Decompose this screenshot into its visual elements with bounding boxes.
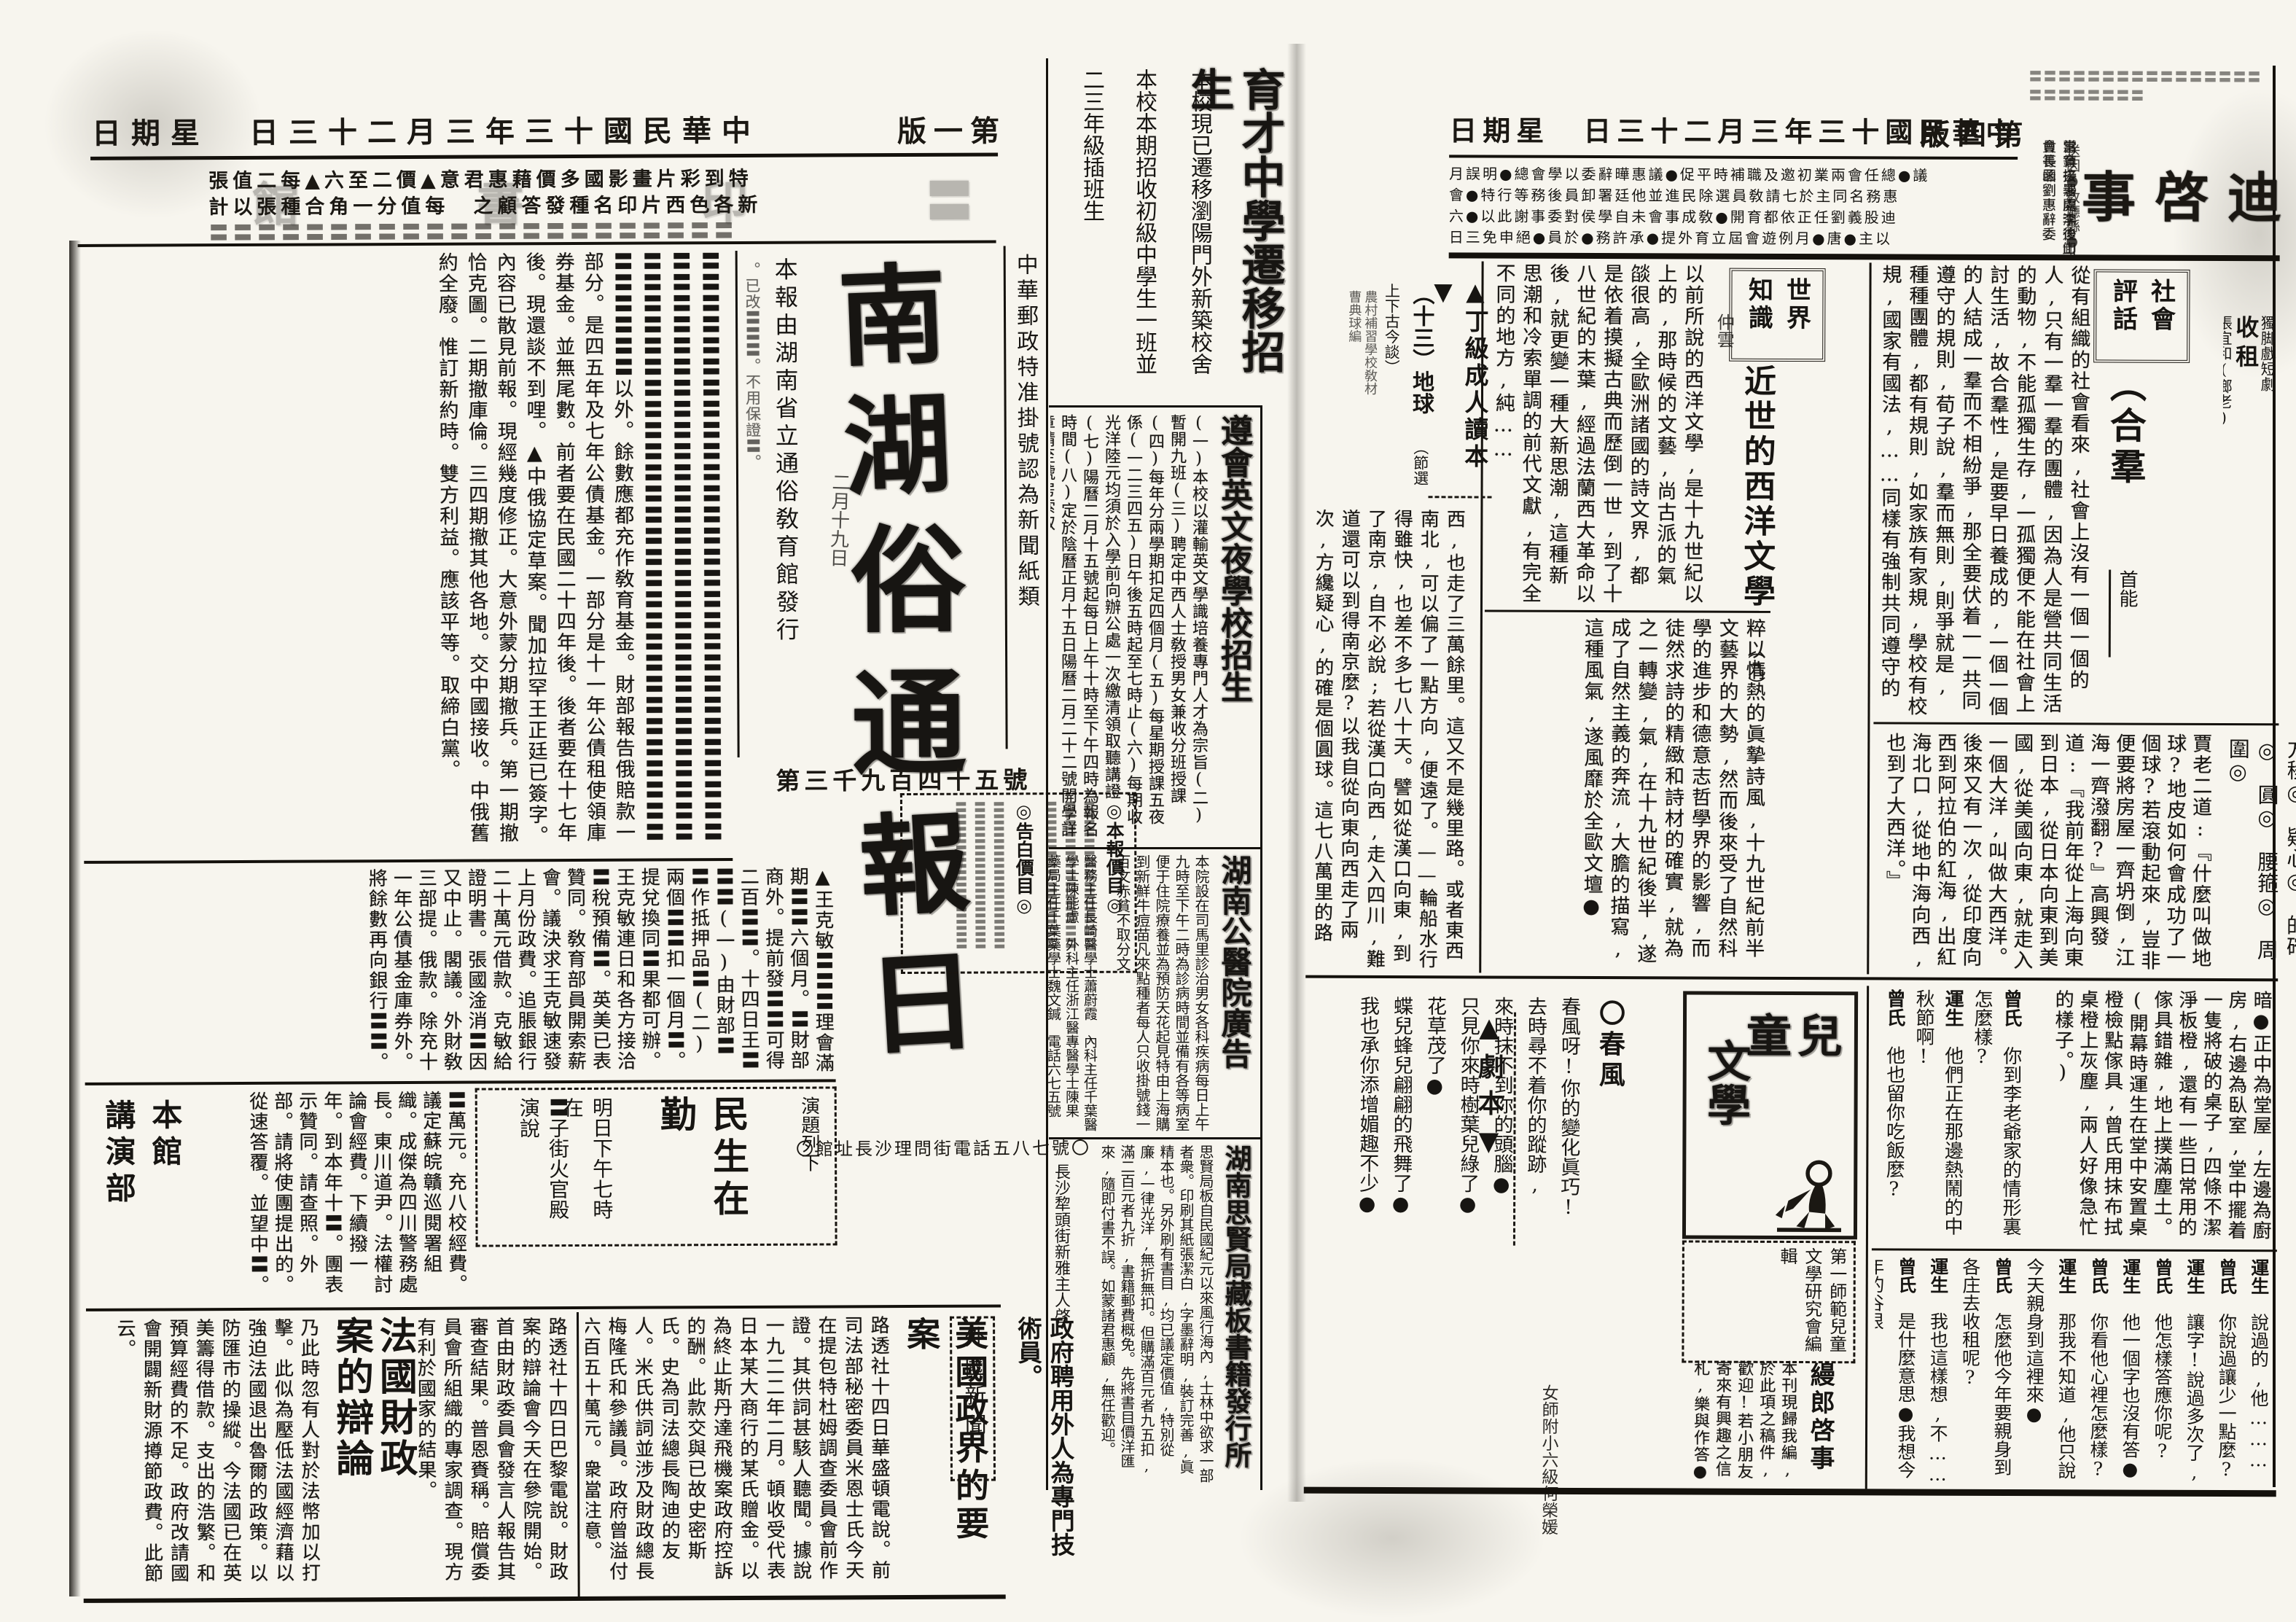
right-header-rule bbox=[1449, 155, 2018, 160]
yucai-sub-text: 本校現已遷移瀏陽門外新築校舍 bbox=[1187, 69, 1212, 375]
dingji-tiny1-text: 農村補習學校敎材 bbox=[1362, 290, 1378, 395]
right-page-bottom-rule bbox=[1304, 1487, 2276, 1497]
poem-line: 去時尋不着你的蹤跡, bbox=[1517, 997, 1552, 1405]
liheidi-grid-row4: 日三免申絕●員於●務許承●提外育立屆會遊例月●唐●主以 bbox=[1449, 227, 2018, 250]
band2-text: ▲王克敏〓〓〓理會滿期〓〓六個月。〓財部商外。提前發〓〓可得二百〓〓。十四日王〓… bbox=[365, 866, 834, 1073]
hospital-body: 本院設在司馬里診治男女各科疾病每日上午九時至下午二時為診病時間並備有各等病室便于… bbox=[1101, 854, 1211, 1131]
gutter-rule-2 bbox=[1049, 847, 1260, 849]
banner-ad: 館 書 印 〓 〓 張值二每▲六至二價▲意君惠藉價多國影畫片彩到特 計以張種合角… bbox=[165, 160, 992, 242]
speaker: 運生 bbox=[2120, 1258, 2141, 1295]
right-page-date-header: 日期星 日三十二月三年三十國民華中 bbox=[1449, 108, 1916, 149]
band1-text: 〓〓〓〓〓〓〓〓〓〓〓〓〓〓〓〓〓〓〓〓〓〓〓〓〓〓〓〓〓〓〓〓〓〓〓〓〓〓〓〓… bbox=[435, 251, 723, 846]
masthead-calligraphy: 南湖 俗通 報日 二月十九日 bbox=[808, 247, 1010, 742]
dingji-tiny2-text: 曹典球編 bbox=[1346, 290, 1362, 343]
speaker: 曾氏 bbox=[2000, 989, 2022, 1027]
play-left-rule bbox=[1865, 986, 1869, 1489]
rates-title-b: ◎告白價目◎ bbox=[1010, 800, 1037, 965]
right-page-label: 版四第 bbox=[1921, 118, 2030, 153]
lecture-topic: 民生在勤 bbox=[649, 1095, 755, 1239]
grid-row-text: 日三免申絕●員於●務許承●提外育立屆會遊例月●唐●主以 bbox=[1449, 228, 1892, 247]
banner-ad-row3: 〓〓〓〓〓〓〓〓〓〓〓〓〓〓〓〓〓〓〓〓〓〓 bbox=[208, 215, 738, 242]
ad-hunan-public-hospital: 湖南公醫院廣告 本院設在司馬里診治男女各科疾病每日上午九時至下午二時為診病時間並… bbox=[1046, 851, 1257, 1134]
sixianju-body: 思賢局板自民國紀元以來風行海內,士林中欲求一部者衆。印刷其紙張潔白,字墨辭明,裝… bbox=[1077, 1145, 1215, 1487]
hospital-staff-text: 醫務主任長崎醫學士蕭蔚霞 內科主任千葉醫學士陳能慮 外科主任浙江醫專醫學士陳果 … bbox=[1047, 854, 1098, 1131]
right-mid-rule bbox=[1305, 975, 2278, 982]
dingji-lesson-text: 西,也走了三萬餘里。這又不是幾里路。或者東西南北,可以偏了一點方向,便遠了。——… bbox=[1308, 509, 1467, 970]
banner-row3-text: 〓〓〓〓〓〓〓〓〓〓〓〓〓〓〓〓〓〓〓〓〓〓 bbox=[208, 220, 738, 242]
stage-directions-text: 暗●正中為堂屋,左邊為廚房,右邊為臥室,堂中擺着一隻將破的桌子,四條不潔淨板橙,… bbox=[2052, 989, 2272, 1241]
date-script-text: 二月十九日 bbox=[827, 472, 851, 567]
poem-line: 我也承你添增媚趣不少● bbox=[1349, 996, 1384, 1404]
poem-line: 只見你來時樹葉兒綠了● bbox=[1450, 996, 1485, 1404]
french-article-tail: 乃此時忽有人對於法幣加以打擊。此似為壓低法國經濟藉以強迫法國退出魯爾的政策。以防… bbox=[88, 1318, 323, 1596]
liheidi-announcement: 當育接署處李後山會長函劉惠辭委 惠鎮去沙開鴻迪卸員等罪 事啓迪惠李 送因●敎廳縣… bbox=[2018, 110, 2281, 257]
foreign-news-label-box: 外國新聞 bbox=[950, 1316, 996, 1481]
left-page-date-header: 日期星 日三十二月三年三十國民華中 bbox=[92, 106, 864, 152]
poem-line-text: 去時尋不着你的蹤跡, bbox=[1523, 997, 1547, 1196]
shijie-zhishi-box: 世界知識 bbox=[1729, 268, 1825, 362]
dialogue-line: 運生 讓字!說過多次了, bbox=[2178, 1258, 2211, 1489]
xiyang-author-text: 仲雲 bbox=[1714, 313, 1734, 348]
poem-line-text: 春風呀!你的變化眞巧! bbox=[1557, 997, 1580, 1219]
dialogue-line: 曾氏 是什麼意思●我想今年的谷很 bbox=[1875, 1257, 1922, 1487]
masthead-tongsu: 俗通 bbox=[851, 513, 980, 792]
hequn-title: （合羣 bbox=[2098, 365, 2152, 555]
poem-line-text: 只見你來時樹葉兒綠了● bbox=[1456, 996, 1480, 1215]
speaker: 運生 bbox=[2184, 1258, 2206, 1295]
xiyang-wenxue-title: 近世的西洋文學 bbox=[1733, 364, 1780, 627]
speech: 他怎樣答應你呢? bbox=[2152, 1313, 2174, 1462]
sixianju-headline: 湖南思賢局藏板書籍發行所 bbox=[1219, 1145, 1253, 1487]
poem-line: 春風呀!你的變化眞巧! bbox=[1550, 997, 1585, 1405]
band3-text: 〓萬元。充八校經費。議定蘇皖贛巡閱署組織。成傑為四川警務處長。東川道尹。法權討論… bbox=[246, 1091, 467, 1295]
ymca-headline: 遵會英文夜學校招生 bbox=[1214, 414, 1253, 837]
sixianju-sig-text: 長沙犂頭街新雅主人啓 bbox=[1052, 1163, 1070, 1324]
manlang-note-text: 本刊現歸我編,於此項之稿件,歡迎!若小朋友寄來有興趣之信札,樂與作答● bbox=[1691, 1360, 1797, 1481]
top-margin-text: 〓〓〓〓〓〓〓〓〓〓〓〓〓〓〓〓〓〓〓〓〓〓〓〓 bbox=[2028, 69, 2262, 104]
poem-line-text: 蝶兒蜂兒翩翩的飛舞了● bbox=[1389, 996, 1413, 1215]
poem-line-text: 我也承你添增媚趣不少● bbox=[1356, 996, 1379, 1215]
lecture-topic-text: 民生在勤 bbox=[655, 1095, 751, 1222]
sig-benguan: 本館 bbox=[141, 1099, 189, 1295]
dialogue-line: 曾氏 你到李老爺家的情形裏怎麼樣? bbox=[1967, 989, 2026, 1241]
poem-line: 花草茂了● bbox=[1416, 996, 1451, 1404]
rates-title-b-text: ◎告白價目◎ bbox=[1013, 800, 1035, 916]
masthead-side-note: 。已改〓〓〓。不用保證〓。 bbox=[741, 262, 765, 728]
sig-jiangyanbu: 講演部 bbox=[95, 1099, 142, 1296]
shehui-pinghua-box: 社會評話 bbox=[2093, 269, 2190, 362]
masthead-hunan: 南湖 bbox=[836, 250, 973, 512]
poem-body: 春風呀!你的變化眞巧! 去時尋不着你的蹤跡, 來時抹不到你的頭腦● 只見你來時樹… bbox=[1307, 996, 1585, 1405]
xiyang-part2: 粹以情熱的眞摯詩風,十九世紀前半文藝界的大勢,然而後來受了自然科學的進步和德意志… bbox=[1488, 617, 1768, 971]
ymca-headline-text: 遵會英文夜學校招生 bbox=[1215, 414, 1252, 703]
sixianju-headline-text: 湖南思賢局藏板書籍發行所 bbox=[1220, 1145, 1252, 1468]
band3-rule bbox=[86, 1304, 1001, 1311]
masthead-publisher: 本報由湖南省立通俗敎育館發行 bbox=[768, 257, 805, 738]
dialogue-line: 曾氏 他也留你吃飯麼? bbox=[1879, 989, 1909, 1241]
cast-text: 張宜和(鄉老) bbox=[2221, 315, 2233, 426]
lecture-notice-box: 演題列下 民生在勤 明日下午七時在 〓子街火官殿演說 bbox=[475, 1086, 837, 1247]
dialogue-line: 運生 那我不知道,他只說今天親身到這裡來● bbox=[2018, 1258, 2082, 1488]
office-address-line: 〇館址長沙理問街電話五八七號〇 bbox=[796, 1134, 1066, 1161]
sixianju-body-text: 思賢局板自民國紀元以來風行海內,士林中欲求一部者衆。印刷其紙張潔白,字墨辭明,裝… bbox=[1098, 1145, 1214, 1483]
ymca-body: (一)本校以灌輸英文學識培養專門人才為宗旨(二)暫開九班(三)聘定中西人士敎授男… bbox=[1050, 414, 1209, 840]
ad-sixianju-books: 湖南思賢局藏板書籍發行所 思賢局板自民國紀元以來風行海內,士林中欲求一部者衆。印… bbox=[1046, 1142, 1257, 1490]
liheidi-side-col-3: 送因●敎廳縣●詠先學● bbox=[2061, 144, 2082, 253]
speaker: 運生 bbox=[1942, 989, 1964, 1027]
gutter-ads: 育才中學遷移招生 本校現已遷移瀏陽門外新築校舍 本校本期招收初級中學生一班並 二… bbox=[1046, 0, 1301, 1622]
shijie-box-label: 世界知識 bbox=[1744, 277, 1811, 332]
rates-col-text: 〓〓〓〓〓〓〓〓〓〓〓〓 bbox=[990, 800, 1005, 949]
ertong-logo-word1: 童兒 bbox=[1746, 999, 1848, 1065]
left-page-number: 版一第 bbox=[897, 107, 1007, 150]
poem-line-text: 花草茂了● bbox=[1424, 996, 1446, 1097]
publisher-text: 本報由湖南省立通俗敎育館發行 bbox=[771, 257, 800, 645]
yucai-body1: 本校本期招收初級中學生一班並 bbox=[1129, 69, 1158, 397]
hospital-staff: 醫務主任長崎醫學士蕭蔚霞 內科主任千葉醫學士陳能慮 外科主任浙江醫專醫學士陳果 … bbox=[1047, 854, 1098, 1131]
rates-col-text: 〓〓〓〓〓〓〓〓〓〓〓〓 bbox=[971, 801, 986, 950]
yucai-body1-text: 本校本期招收初級中學生一班並 bbox=[1131, 69, 1157, 375]
dingji-marker-text: ▲丁級成人讀本▼ bbox=[1429, 277, 1489, 470]
band2-rule bbox=[85, 1079, 836, 1085]
speaker: 運生 bbox=[2056, 1258, 2077, 1294]
postal-note-text: 中華郵政特准掛號認為新聞紙類 bbox=[1012, 253, 1039, 610]
grid-row-text: 會●特行等務後員卸署廷他並進民除選員敎請七於主同名務惠 bbox=[1449, 186, 1900, 205]
liheidi-grid-row2: 會●特行等務後員卸署廷他並進民除選員敎請七於主同名務惠 bbox=[1449, 184, 2018, 208]
masthead: 。已改〓〓〓。不用保證〓。 本報由湖南省立通俗敎育館發行 南湖 俗通 報日 二月… bbox=[741, 246, 1046, 757]
xiyang-title-text: 近世的西洋文學 bbox=[1738, 364, 1776, 609]
manlang-title-text: 縵郎啓事 bbox=[1805, 1362, 1835, 1473]
hospital-headline: 湖南公醫院廣告 bbox=[1215, 854, 1253, 1131]
speech: 你說過讓少一點麼? bbox=[2216, 1313, 2238, 1480]
left-header-rule bbox=[90, 152, 998, 160]
xiyang-author: 仲雲 bbox=[1711, 313, 1737, 379]
xiyang-part2-text: 粹以情熱的眞摯詩風,十九世紀前半文藝界的大勢,然而後來受了自然科學的進步和德意志… bbox=[1580, 617, 1765, 964]
speaker: 曾氏 bbox=[2088, 1258, 2109, 1294]
ertong-logo-box: 童兒 文學 bbox=[1682, 991, 1858, 1239]
dialogue-line: 曾氏 他怎樣答應你呢? bbox=[2146, 1258, 2179, 1489]
band2-news-article: ▲王克敏〓〓〓理會滿期〓〓六個月。〓財部商外。提前發〓〓可得二百〓〓。十四日王〓… bbox=[84, 866, 835, 1077]
newspaper-scan: 日期星 日三十二月三年三十國民華中 版一第 館 書 印 〓 〓 張值二每▲六至二… bbox=[0, 0, 2296, 1622]
manlang-note: 本刊現歸我編,於此項之稿件,歡迎!若小朋友寄來有興趣之信札,樂與作答● bbox=[1682, 1360, 1799, 1494]
speech: 讓字!說過多次了, bbox=[2184, 1313, 2206, 1483]
g1-mid-rule bbox=[1873, 722, 2279, 725]
poem-signature-text: 女師附小六級何榮媛 bbox=[1539, 1384, 1558, 1535]
left-page-bottom-rule bbox=[84, 1594, 1006, 1603]
hequn-text: 從有組織的社會看來,社會上沒有一個一個的人,只有一羣一羣的團體,因為人是營共同生… bbox=[1881, 264, 2090, 717]
play-stage-directions: 暗●正中為堂屋,左邊為廚房,右邊為臥室,堂中擺着一隻將破的桌子,四條不潔淨板橙,… bbox=[2032, 989, 2273, 1242]
ertong-wenxue-section: 童兒 文學 第一師範兒童文學研究會編輯 縵郎啓事 本刊現歸我編,於此項之稿件,歡… bbox=[1638, 991, 1858, 1494]
left-page-label: 版一第 bbox=[897, 114, 1007, 149]
ertong-editor-box: 第一師範兒童文學研究會編輯 bbox=[1682, 1240, 1856, 1363]
speech: 你看他心裡怎麼樣? bbox=[2088, 1312, 2109, 1479]
poem-line: 蝶兒蜂兒翩翩的飛舞了● bbox=[1383, 996, 1418, 1404]
ymca-body-text: (一)本校以灌輸英文學識培養專門人才為宗旨(二)暫開九班(三)聘定中西人士敎授男… bbox=[1050, 414, 1208, 838]
band1-rule bbox=[84, 858, 733, 864]
liheidi-headline: 事啓迪惠李 bbox=[2082, 154, 2296, 233]
speech: 我也這樣想,不…… bbox=[1927, 1312, 1949, 1485]
dingji-lesson-no-text: （十三）地球 bbox=[1408, 283, 1434, 414]
speaker: 曾氏 bbox=[1992, 1258, 2013, 1294]
poem-title: 〇春風 bbox=[1590, 999, 1629, 1145]
french-tail-text: 乃此時忽有人對於法幣加以打擊。此似為壓低法國經濟藉以強迫法國退出魯爾的政策。以防… bbox=[114, 1318, 321, 1584]
grid-row-text: 月誤明●總會學以委辭曄惠議●促平時補職及邀初業兩會任總●議 bbox=[1449, 165, 1929, 184]
hequn-article: 從有組織的社會看來,社會上沒有一個一個的人,只有一羣一羣的團體,因為人是營共同生… bbox=[1881, 264, 2092, 718]
speaker: 曾氏 bbox=[1896, 1257, 1917, 1293]
masthead-postal-note: 中華郵政特准掛號認為新聞紙類 bbox=[1008, 253, 1044, 734]
liheidi-side-text: 送因●敎廳縣●詠先學● bbox=[2061, 144, 2081, 250]
xiyang-part1-text: 以前所說的西洋文學,是十九世紀以上的,那時候的文藝,尚古派的氣燄很高,全歐洲諸國… bbox=[1492, 263, 1704, 605]
dialogue-line: 曾氏 你看他心裡怎麼樣? bbox=[2082, 1258, 2115, 1488]
play-genre-text: 獨脚戲短劇 bbox=[2259, 315, 2276, 391]
lesson-dialogue: 賈老二道:『什麼叫做地球?地皮如何會成功了一個球?若滾動起來,豈非便要將房屋一齊… bbox=[1880, 732, 2213, 972]
shehui-box-label: 社會評話 bbox=[2108, 278, 2175, 333]
hospital-headline-text: 湖南公醫院廣告 bbox=[1217, 854, 1252, 1069]
rates-col-4: 〓〓〓〓〓〓〓〓〓〓〓〓 bbox=[988, 800, 1007, 965]
ad-yucai-school: 育才中學遷移招生 本校現已遷移瀏陽門外新築校舍 本校本期招收初級中學生一班並 二… bbox=[1046, 58, 1301, 401]
french-lead-text: 路透社十四日巴黎電說。財政案的辯論會今天在參院開始。首由財政委員會發言人報告其審… bbox=[414, 1317, 569, 1583]
dialogue-line: 運生 說過的,他……… bbox=[2242, 1258, 2275, 1489]
masthead-left-rule bbox=[735, 251, 740, 757]
band4-col-rule bbox=[577, 1312, 580, 1596]
speaker: 運生 bbox=[2249, 1258, 2270, 1295]
ad-ymca-english-school: 遵會英文夜學校招生 (一)本校以灌輸英文學識培養專門人才為宗旨(二)暫開九班(三… bbox=[1046, 410, 1257, 844]
masthead-date-script: 二月十九日 bbox=[822, 472, 854, 633]
right-page: 〓〓〓〓〓〓〓〓〓〓〓〓〓〓〓〓〓〓〓〓〓〓〓〓 日期星 日三十二月三年三十國民… bbox=[1295, 0, 2296, 1622]
speech: 他也留你吃飯麼? bbox=[1883, 1045, 1905, 1200]
xiyang-part1: 以前所說的西洋文學,是十九世紀以上的,那時候的文藝,尚古派的氣燄很高,全歐洲諸國… bbox=[1489, 263, 1706, 607]
gutter-right-rule bbox=[1260, 405, 1262, 1490]
us-text: 路透社十四日華盛頓電說。前司法部秘密委員米恩士氏今天在提包特杜姆調查委員會前作證… bbox=[585, 1315, 891, 1582]
g2-mid-rule bbox=[1485, 610, 1770, 613]
child-with-horn-icon bbox=[1769, 1153, 1849, 1233]
jiangyanbu-text: 講演部 bbox=[101, 1099, 137, 1209]
speech: 說過的,他……… bbox=[2248, 1313, 2270, 1470]
speech: 他一個字也沒有答● bbox=[2120, 1313, 2141, 1480]
left-date-text: 日期星 日三十二月三年三十國民華中 bbox=[92, 114, 761, 151]
dingji-text: 西,也走了三萬餘里。這又不是幾里路。或者東西南北,可以偏了一點方向,便遠了。——… bbox=[1308, 509, 1465, 970]
rates-col-text: 〓〓〓〓〓〓〓〓〓〓〓〓 bbox=[952, 801, 967, 950]
ertong-editor-text: 第一師範兒童文學研究會編輯 bbox=[1777, 1247, 1847, 1352]
poem-line-text: 來時抹不到你的頭腦● bbox=[1490, 997, 1513, 1196]
issue-number-line: 第三千九百四十五號 bbox=[773, 760, 1035, 797]
yucai-body2-text: 二三年級插班生 bbox=[1079, 69, 1104, 222]
lecture-section-sig: 本館 講演部 bbox=[95, 1099, 189, 1296]
dialogue-line: 運生 他們正在那邊熱鬧的中秋節啊! bbox=[1908, 989, 1967, 1241]
g1-g2-rule bbox=[1867, 262, 1871, 974]
dialogue-line: 曾氏 你說過讓少一點麼? bbox=[2210, 1258, 2243, 1489]
poem-title-text: 〇春風 bbox=[1595, 999, 1625, 1091]
band1-news-article: 〓〓〓〓〓〓〓〓〓〓〓〓〓〓〓〓〓〓〓〓〓〓〓〓〓〓〓〓〓〓〓〓〓〓〓〓〓〓〓〓… bbox=[82, 251, 726, 857]
french-article-lead: 路透社十四日巴黎電說。財政案的辯論會今天在參院開始。首由財政委員會發言人報告其審… bbox=[396, 1317, 571, 1594]
dingji-marker: ▲丁級成人讀本▼ bbox=[1428, 277, 1492, 498]
lecture-label: 演題列下 bbox=[796, 1096, 824, 1235]
liheidi-grid-row1: 月誤明●總會學以委辭曄惠議●促平時補職及邀初業兩會任總●議 bbox=[1449, 163, 2018, 187]
gutter-rule-3 bbox=[1049, 1137, 1260, 1139]
benguan-text: 本館 bbox=[147, 1099, 183, 1171]
lesson-dialogue-text: 賈老二道:『什麼叫做地球?地皮如何會成功了一個球?若滾動起來,豈非便要將房屋一齊… bbox=[1883, 732, 2212, 971]
dialogue-line: 曾氏 怎麼他今年要親身到各庄去收租呢? bbox=[1953, 1258, 2018, 1488]
vocab-text: 方稜◎ 疑心◎ 的確◎ 圓◎ 腰箍◎ 周圍◎ bbox=[2225, 738, 2296, 960]
ertong-logo-word2: 文學 bbox=[1693, 1039, 1757, 1214]
hequn-author-text: 首能 bbox=[2116, 570, 2138, 608]
ertong-word1-text: 童兒 bbox=[1746, 1010, 1848, 1063]
lecture-line2-text: 〓子街火官殿演說 bbox=[517, 1097, 571, 1220]
dialogue-line: 運生 我也這樣想,不…… bbox=[1921, 1258, 1954, 1488]
speaker: 運生 bbox=[1928, 1258, 1949, 1294]
left-page: 日期星 日三十二月三年三十國民華中 版一第 館 書 印 〓 〓 張值二每▲六至二… bbox=[0, 0, 1148, 1622]
dialogue-line: 運生 他一個字也沒有答● bbox=[2114, 1258, 2147, 1489]
grid-row-text: 六●以此謝事委對侯學自未會事成敎●開育都依正任劉義股迪 bbox=[1449, 207, 1898, 226]
hequn-title-text: （合羣 bbox=[2104, 365, 2148, 488]
speaker: 曾氏 bbox=[1883, 989, 1905, 1026]
speaker: 曾氏 bbox=[2217, 1258, 2238, 1295]
poem-line: 來時抹不到你的頭腦● bbox=[1483, 997, 1518, 1405]
play-dialogue-2: 運生 說過的,他……… 曾氏 你說過讓少一點麼? 運生 讓字!說過多次了, 曾氏… bbox=[1875, 1257, 2275, 1489]
yucai-body2: 二三年級插班生 bbox=[1077, 69, 1106, 397]
hequn-author: 首能 bbox=[2109, 569, 2141, 657]
lesson-vocab: 方稜◎ 疑心◎ 的確◎ 圓◎ 腰箍◎ 周圍◎ bbox=[2222, 738, 2296, 971]
play-title-text: 收租 bbox=[2232, 315, 2260, 373]
dingji-tiny-2: 曹典球編 bbox=[1344, 290, 1364, 494]
dingji-lesson-no: （十三）地球 （節選上下古今談） bbox=[1379, 283, 1437, 494]
us-article-body: 路透社十四日華盛頓電說。前司法部秘密委員米恩士氏今天在提包特杜姆調查委員會前作證… bbox=[585, 1315, 893, 1594]
play-dialogue-1: 曾氏 你到李老爺家的情形裏怎麼樣? 運生 他們正在那邊熱鬧的中秋節啊! 曾氏 他… bbox=[1879, 989, 2026, 1241]
manlang-title: 縵郎啓事 bbox=[1803, 1362, 1839, 1493]
hospital-body-text: 本院設在司馬里診治男女各科疾病每日上午九時至下午二時為診病時間並備有各等病室便于… bbox=[1114, 854, 1210, 1131]
speaker: 曾氏 bbox=[2152, 1258, 2174, 1295]
gutter-left-rule bbox=[1046, 58, 1048, 1490]
ertong-word2-text: 文學 bbox=[1699, 1039, 1750, 1126]
yucai-sub: 本校現已遷移瀏陽門外新築校舍 bbox=[1184, 69, 1214, 397]
play-mid-rule bbox=[1872, 1248, 2277, 1252]
right-page-number: 版四第 bbox=[1921, 112, 2030, 155]
issue-number-text: 第三千九百四十五號 bbox=[776, 765, 1031, 795]
foreign-news-label: 外國新聞 bbox=[960, 1326, 986, 1443]
sixianju-signature: 長沙犂頭街新雅主人啓 bbox=[1049, 1163, 1072, 1484]
liheidi-headline-text: 事啓迪惠李 bbox=[2082, 166, 2296, 230]
rates-col-6: 〓〓〓〓〓〓〓〓〓〓〓〓 bbox=[950, 801, 969, 966]
lecture-line2: 〓子街火官殿演說 bbox=[514, 1097, 573, 1236]
side-note-text: 。已改〓〓〓。不用保證〓。 bbox=[743, 262, 762, 470]
liheidi-grid-row3: 六●以此謝事委對侯學自未會事成敎●開育都依正任劉義股迪 bbox=[1449, 206, 2018, 229]
liheidi-grid: 月誤明●總會學以委辭曄惠議●促平時補職及邀初業兩會任總●議 會●特行等務後員卸署… bbox=[1449, 163, 2018, 250]
gutter-rule-1 bbox=[1049, 405, 1260, 408]
band3-news-article: 〓萬元。充八校經費。議定蘇皖贛巡閱署組織。成傑為四川警務處長。東川道尹。法權討論… bbox=[191, 1091, 469, 1303]
rates-col-5: 〓〓〓〓〓〓〓〓〓〓〓〓 bbox=[969, 801, 988, 966]
